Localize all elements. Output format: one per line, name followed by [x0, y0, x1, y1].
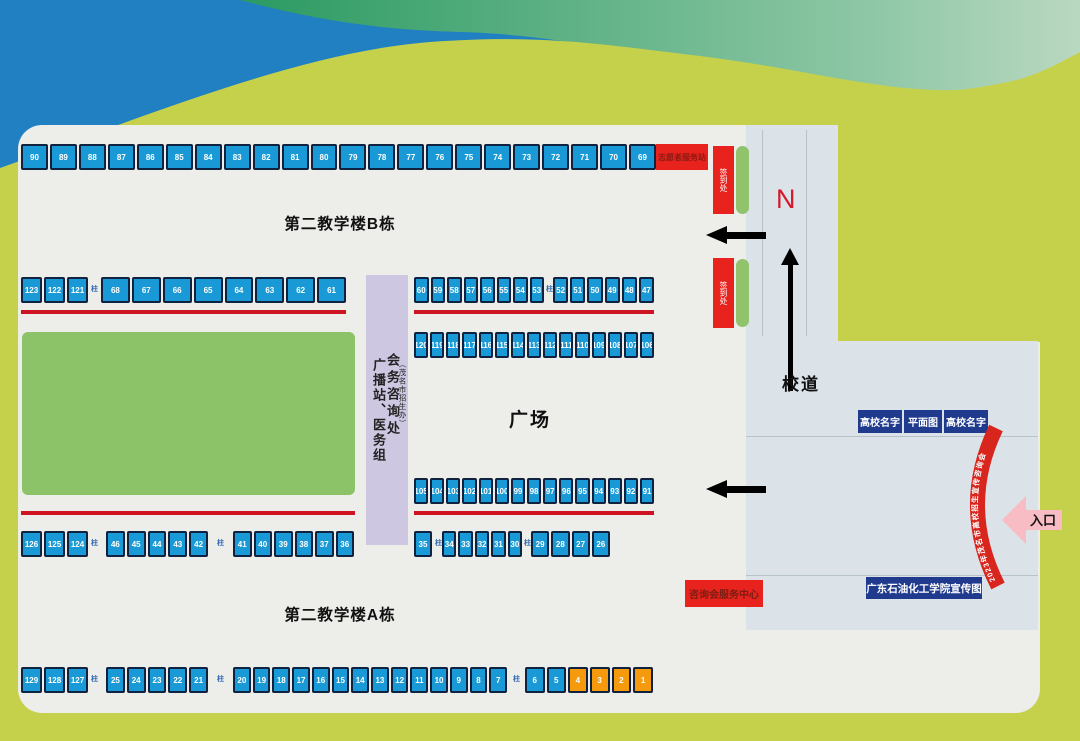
- booth-58: 58: [447, 277, 462, 303]
- booth-97: 97: [543, 478, 557, 504]
- booth-108: 108: [608, 332, 622, 358]
- lane-line: [806, 130, 807, 336]
- booth-86: 86: [137, 144, 164, 170]
- red-boundary-line: [21, 310, 346, 314]
- booth-39: 39: [274, 531, 293, 557]
- pillar-label: 柱: [546, 284, 553, 294]
- booth-45: 45: [127, 531, 146, 557]
- booth-123: 123: [21, 277, 42, 303]
- booth-84: 84: [195, 144, 222, 170]
- booth-row: 65: [525, 667, 566, 693]
- booth-row: 123122121: [21, 277, 88, 303]
- booth-103: 103: [446, 478, 460, 504]
- booth-1: 1: [633, 667, 653, 693]
- campus-map: 9089888786858483828180797877767574737271…: [0, 0, 1080, 741]
- booth-row: 2524232221: [106, 667, 208, 693]
- booth-85: 85: [166, 144, 193, 170]
- admissions-office-label: （茂名市招生办）: [397, 360, 408, 428]
- booth-47: 47: [639, 277, 654, 303]
- booth-row-orange: 4321: [568, 667, 653, 693]
- booth-row: 129128127: [21, 667, 88, 693]
- booth-70: 70: [600, 144, 627, 170]
- booth-96: 96: [559, 478, 573, 504]
- booth-98: 98: [527, 478, 541, 504]
- booth-115: 115: [495, 332, 509, 358]
- red-boundary-line: [414, 511, 654, 515]
- booth-124: 124: [67, 531, 88, 557]
- booth-62: 62: [286, 277, 315, 303]
- booth-117: 117: [462, 332, 476, 358]
- service-center-box: 咨询会服务中心: [685, 580, 763, 607]
- booth-53: 53: [530, 277, 545, 303]
- service-center-label: 咨询会服务中心: [689, 586, 759, 601]
- road-label: 校道: [782, 370, 820, 395]
- entrance-arrow: 入口: [1002, 494, 1064, 546]
- red-boundary-line: [21, 511, 355, 515]
- red-boundary-line: [414, 310, 654, 314]
- booth-33: 33: [458, 531, 472, 557]
- booth-89: 89: [50, 144, 77, 170]
- booth-4: 4: [568, 667, 588, 693]
- booth-2: 2: [612, 667, 632, 693]
- booth-52: 52: [553, 277, 568, 303]
- hedge: [736, 146, 749, 214]
- building-a-label: 第二教学楼A栋: [240, 603, 440, 625]
- booth-row: 2019181716151413121110987: [233, 667, 507, 693]
- booth-79: 79: [339, 144, 366, 170]
- booth-114: 114: [511, 332, 525, 358]
- booth-82: 82: [253, 144, 280, 170]
- checkin-tent: 签到处: [713, 146, 734, 214]
- booth-129: 129: [21, 667, 42, 693]
- booth-74: 74: [484, 144, 511, 170]
- booth-41: 41: [233, 531, 252, 557]
- booth-row: 126125124: [21, 531, 88, 557]
- booth-25: 25: [106, 667, 125, 693]
- booth-128: 128: [44, 667, 65, 693]
- booth-row: 6059585756555453: [414, 277, 544, 303]
- booth-49: 49: [605, 277, 620, 303]
- site-map-sign: 平面图: [904, 410, 942, 433]
- booth-122: 122: [44, 277, 65, 303]
- booth-67: 67: [132, 277, 161, 303]
- booth-23: 23: [148, 667, 167, 693]
- booth-row: 3433323130: [442, 531, 522, 557]
- booth-55: 55: [497, 277, 512, 303]
- booth-64: 64: [225, 277, 254, 303]
- booth-13: 13: [371, 667, 389, 693]
- booth-19: 19: [253, 667, 271, 693]
- booth-35: 35: [414, 531, 432, 557]
- booth-83: 83: [224, 144, 251, 170]
- booth-9: 9: [450, 667, 468, 693]
- pillar-label: 柱: [513, 674, 520, 684]
- booth-102: 102: [462, 478, 476, 504]
- booth-54: 54: [513, 277, 528, 303]
- booth-109: 109: [592, 332, 606, 358]
- booth-104: 104: [430, 478, 444, 504]
- booth-87: 87: [108, 144, 135, 170]
- booth-20: 20: [233, 667, 251, 693]
- booth-118: 118: [446, 332, 460, 358]
- booth-11: 11: [410, 667, 428, 693]
- building-b-label: 第二教学楼B栋: [240, 212, 440, 234]
- booth-65: 65: [194, 277, 223, 303]
- booth-92: 92: [624, 478, 638, 504]
- booth-27: 27: [572, 531, 590, 557]
- booth-8: 8: [470, 667, 488, 693]
- booth-91: 91: [640, 478, 654, 504]
- booth-18: 18: [272, 667, 290, 693]
- booth-60: 60: [414, 277, 429, 303]
- plaza-label: 广场: [480, 405, 580, 432]
- arrow-left-icon: [706, 480, 766, 498]
- booth-78: 78: [368, 144, 395, 170]
- booth-110: 110: [575, 332, 589, 358]
- booth-77: 77: [397, 144, 424, 170]
- booth-32: 32: [475, 531, 489, 557]
- booth-99: 99: [511, 478, 525, 504]
- booth-24: 24: [127, 667, 146, 693]
- booth-93: 93: [608, 478, 622, 504]
- booth-28: 28: [551, 531, 569, 557]
- booth-21: 21: [189, 667, 208, 693]
- booth-101: 101: [479, 478, 493, 504]
- booth-88: 88: [79, 144, 106, 170]
- pillar-label: 柱: [217, 538, 224, 548]
- booth-116: 116: [479, 332, 493, 358]
- booth-row: 1201191181171161151141131121111101091081…: [414, 332, 654, 358]
- booth-row-top: 9089888786858483828180797877767574737271…: [21, 144, 656, 170]
- booth-29: 29: [531, 531, 549, 557]
- booth-107: 107: [624, 332, 638, 358]
- booth-10: 10: [430, 667, 448, 693]
- background-patch: [838, 124, 1041, 342]
- booth-100: 100: [495, 478, 509, 504]
- booth-66: 66: [163, 277, 192, 303]
- booth-125: 125: [44, 531, 65, 557]
- booth-51: 51: [570, 277, 585, 303]
- booth-26: 26: [592, 531, 610, 557]
- volunteer-service-station: 志愿者服务站: [656, 144, 708, 170]
- checkin-tent: 签到处: [713, 258, 734, 328]
- booth-68: 68: [101, 277, 130, 303]
- pillar-label: 柱: [91, 674, 98, 684]
- pillar-label: 柱: [524, 538, 531, 548]
- booth-46: 46: [106, 531, 125, 557]
- booth-126: 126: [21, 531, 42, 557]
- booth-59: 59: [431, 277, 446, 303]
- booth-42: 42: [189, 531, 208, 557]
- booth-72: 72: [542, 144, 569, 170]
- booth-44: 44: [148, 531, 167, 557]
- booth-63: 63: [255, 277, 284, 303]
- booth-12: 12: [391, 667, 409, 693]
- booth-119: 119: [430, 332, 444, 358]
- booth-17: 17: [292, 667, 310, 693]
- booth-61: 61: [317, 277, 346, 303]
- booth-row: 4645444342: [106, 531, 208, 557]
- booth-row: 105104103102101100999897969594939291: [414, 478, 654, 504]
- booth-7: 7: [489, 667, 507, 693]
- uni-name-sign: 高校名字: [858, 410, 902, 433]
- booth-56: 56: [480, 277, 495, 303]
- booth-95: 95: [575, 478, 589, 504]
- arrow-left-icon: [706, 226, 766, 244]
- pillar-label: 柱: [91, 284, 98, 294]
- booth-30: 30: [508, 531, 522, 557]
- booth-73: 73: [513, 144, 540, 170]
- pillar-label: 柱: [435, 538, 442, 548]
- booth-22: 22: [168, 667, 187, 693]
- booth-94: 94: [592, 478, 606, 504]
- booth-71: 71: [571, 144, 598, 170]
- booth-40: 40: [254, 531, 273, 557]
- booth-111: 111: [559, 332, 573, 358]
- booth-row: 525150494847: [553, 277, 654, 303]
- booth-row: 35: [414, 531, 432, 557]
- booth-121: 121: [67, 277, 88, 303]
- booth-15: 15: [332, 667, 350, 693]
- booth-16: 16: [312, 667, 330, 693]
- booth-127: 127: [67, 667, 88, 693]
- booth-69: 69: [629, 144, 656, 170]
- pillar-label: 柱: [91, 538, 98, 548]
- entrance-label: 入口: [1030, 513, 1056, 528]
- booth-120: 120: [414, 332, 428, 358]
- booth-113: 113: [527, 332, 541, 358]
- booth-57: 57: [464, 277, 479, 303]
- lawn: [22, 332, 355, 495]
- booth-row: 6867666564636261: [101, 277, 346, 303]
- pillar-label: 柱: [217, 674, 224, 684]
- booth-row: 414039383736: [233, 531, 354, 557]
- booth-112: 112: [543, 332, 557, 358]
- volunteer-station-label: 志愿者服务站: [658, 152, 706, 163]
- booth-50: 50: [587, 277, 602, 303]
- booth-5: 5: [547, 667, 567, 693]
- booth-105: 105: [414, 478, 428, 504]
- booth-34: 34: [442, 531, 456, 557]
- booth-43: 43: [168, 531, 187, 557]
- booth-14: 14: [351, 667, 369, 693]
- booth-row: 29282726: [531, 531, 610, 557]
- booth-37: 37: [315, 531, 334, 557]
- booth-3: 3: [590, 667, 610, 693]
- booth-38: 38: [295, 531, 314, 557]
- booth-6: 6: [525, 667, 545, 693]
- hedge: [736, 259, 749, 327]
- booth-75: 75: [455, 144, 482, 170]
- booth-31: 31: [491, 531, 505, 557]
- booth-90: 90: [21, 144, 48, 170]
- booth-76: 76: [426, 144, 453, 170]
- booth-36: 36: [336, 531, 355, 557]
- north-indicator: N: [776, 184, 796, 215]
- booth-81: 81: [282, 144, 309, 170]
- booth-80: 80: [311, 144, 338, 170]
- booth-48: 48: [622, 277, 637, 303]
- booth-106: 106: [640, 332, 654, 358]
